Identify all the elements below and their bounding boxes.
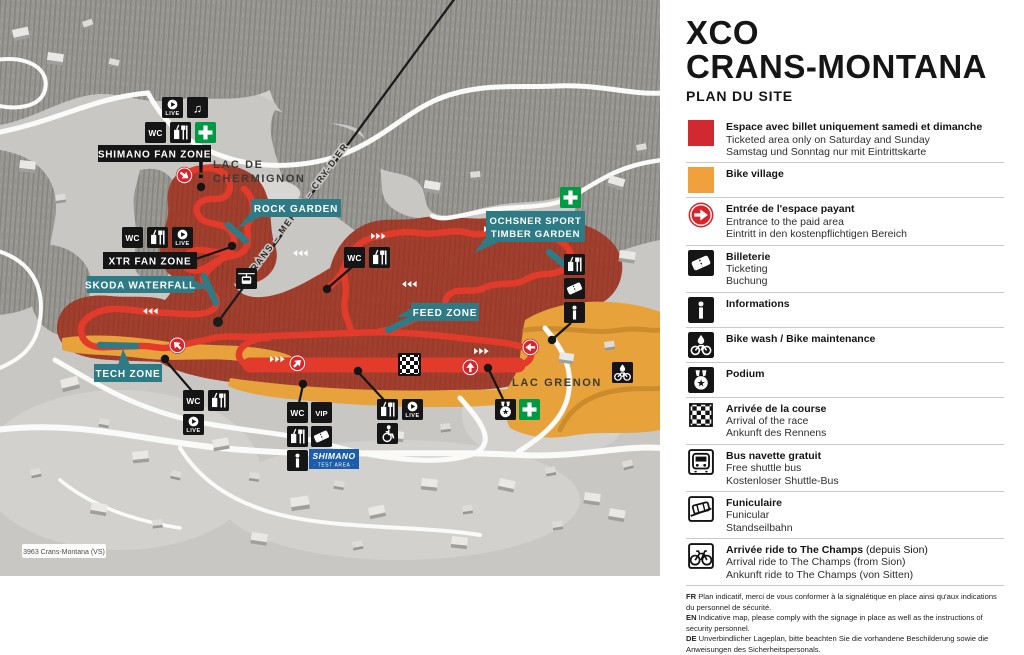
funicular-icon xyxy=(688,496,714,522)
legend-row-bike-village: Bike village xyxy=(686,163,1004,198)
legend-row-shuttle-bus: Bus navette gratuit Free shuttle bus Kos… xyxy=(686,445,1004,492)
ticket-icon xyxy=(688,250,714,276)
svg-text:LAC DE: LAC DE xyxy=(213,159,264,171)
legend-list: Espace avec billet uniquement samedi et … xyxy=(686,116,1004,586)
wheelchair-access-icon xyxy=(377,423,398,444)
legend-row-bike-wash: Bike wash / Bike maintenance xyxy=(686,328,1004,363)
svg-text:OCHSNER SPORT: OCHSNER SPORT xyxy=(490,216,582,227)
legend-row-funicular: Funiculaire Funicular Standseilbahn xyxy=(686,492,1004,539)
svg-text:TIMBER GARDEN: TIMBER GARDEN xyxy=(491,229,580,240)
page-title-line2: CRANS-MONTANA xyxy=(686,50,1004,84)
gondola-station-icon xyxy=(236,268,257,289)
svg-text:TECH ZONE: TECH ZONE xyxy=(96,369,161,380)
bike-village-swatch xyxy=(688,167,714,193)
label-shimano-fan-zone: SHIMANO FAN ZONE xyxy=(98,145,211,162)
first-aid-icon xyxy=(519,399,540,420)
bus-icon xyxy=(688,449,714,475)
tech-zone-segment xyxy=(100,345,136,346)
label-xtr-fan-zone: XTR FAN ZONE xyxy=(103,252,197,269)
info-icon xyxy=(688,297,714,323)
svg-text:CHERMIGNON: CHERMIGNON xyxy=(213,173,305,185)
entrance-icon xyxy=(688,202,714,228)
label-shimano-test-area: SHIMANO · TEST AREA · xyxy=(309,449,359,469)
attribution: 3963 Crans-Montana (VS) xyxy=(22,544,106,558)
bike-wash-icon xyxy=(612,362,633,383)
legend-row-informations: Informations xyxy=(686,293,1004,328)
svg-text:· TEST AREA ·: · TEST AREA · xyxy=(314,463,355,469)
legend-row-ticketing: Billeterie Ticketing Buchung xyxy=(686,246,1004,293)
legend-row-ticketed-area: Espace avec billet uniquement samedi et … xyxy=(686,116,1004,163)
podium-icon xyxy=(495,399,516,420)
svg-text:XTR FAN ZONE: XTR FAN ZONE xyxy=(109,257,192,268)
first-aid-icon xyxy=(560,187,581,208)
ticketing-icon xyxy=(564,278,585,299)
bike-wash-icon xyxy=(688,332,714,358)
svg-text:SKODA WATERFALL: SKODA WATERFALL xyxy=(85,281,196,292)
legend-row-ride-arrival: Arrivée ride to The Champs (depuis Sion)… xyxy=(686,539,1004,586)
page-title-line1: XCO xyxy=(686,16,1004,50)
page-subtitle: PLAN DU SITE xyxy=(686,88,1004,104)
site-map: WC VIP ♫ LIVE xyxy=(0,0,660,576)
legend-row-finish: Arrivée de la course Arrival of the race… xyxy=(686,398,1004,445)
disclaimer-en: EN Indicative map, please comply with th… xyxy=(686,613,1004,634)
svg-text:ROCK GARDEN: ROCK GARDEN xyxy=(254,204,338,215)
first-aid-icon xyxy=(195,122,216,143)
info-icon xyxy=(564,302,585,323)
vip-zone-icon xyxy=(311,402,332,423)
svg-text:SHIMANO: SHIMANO xyxy=(313,451,356,461)
disclaimer-de: DE Unverbindlicher Lageplan, bitte beach… xyxy=(686,634,1004,655)
svg-text:3963 Crans-Montana (VS): 3963 Crans-Montana (VS) xyxy=(23,549,105,556)
disclaimer: FR Plan indicatif, merci de vous conform… xyxy=(686,592,1004,655)
legend-panel: XCO CRANS-MONTANA PLAN DU SITE Espace av… xyxy=(660,0,1024,576)
ticketing-icon xyxy=(311,426,332,447)
legend-row-podium: Podium xyxy=(686,363,1004,398)
svg-text:LAC GRENON: LAC GRENON xyxy=(512,377,602,389)
podium-icon xyxy=(688,367,714,393)
bicycle-icon xyxy=(688,543,714,569)
legend-row-entrance: Entrée de l'espace payant Entrance to th… xyxy=(686,198,1004,245)
disclaimer-fr: FR Plan indicatif, merci de vous conform… xyxy=(686,592,1004,613)
svg-text:SHIMANO FAN ZONE: SHIMANO FAN ZONE xyxy=(98,150,211,161)
ticketed-area-swatch xyxy=(688,120,714,146)
svg-text:FEED ZONE: FEED ZONE xyxy=(413,308,477,319)
finish-line-icon xyxy=(398,353,421,376)
finish-flag-icon xyxy=(688,402,714,428)
info-icon xyxy=(287,450,308,471)
